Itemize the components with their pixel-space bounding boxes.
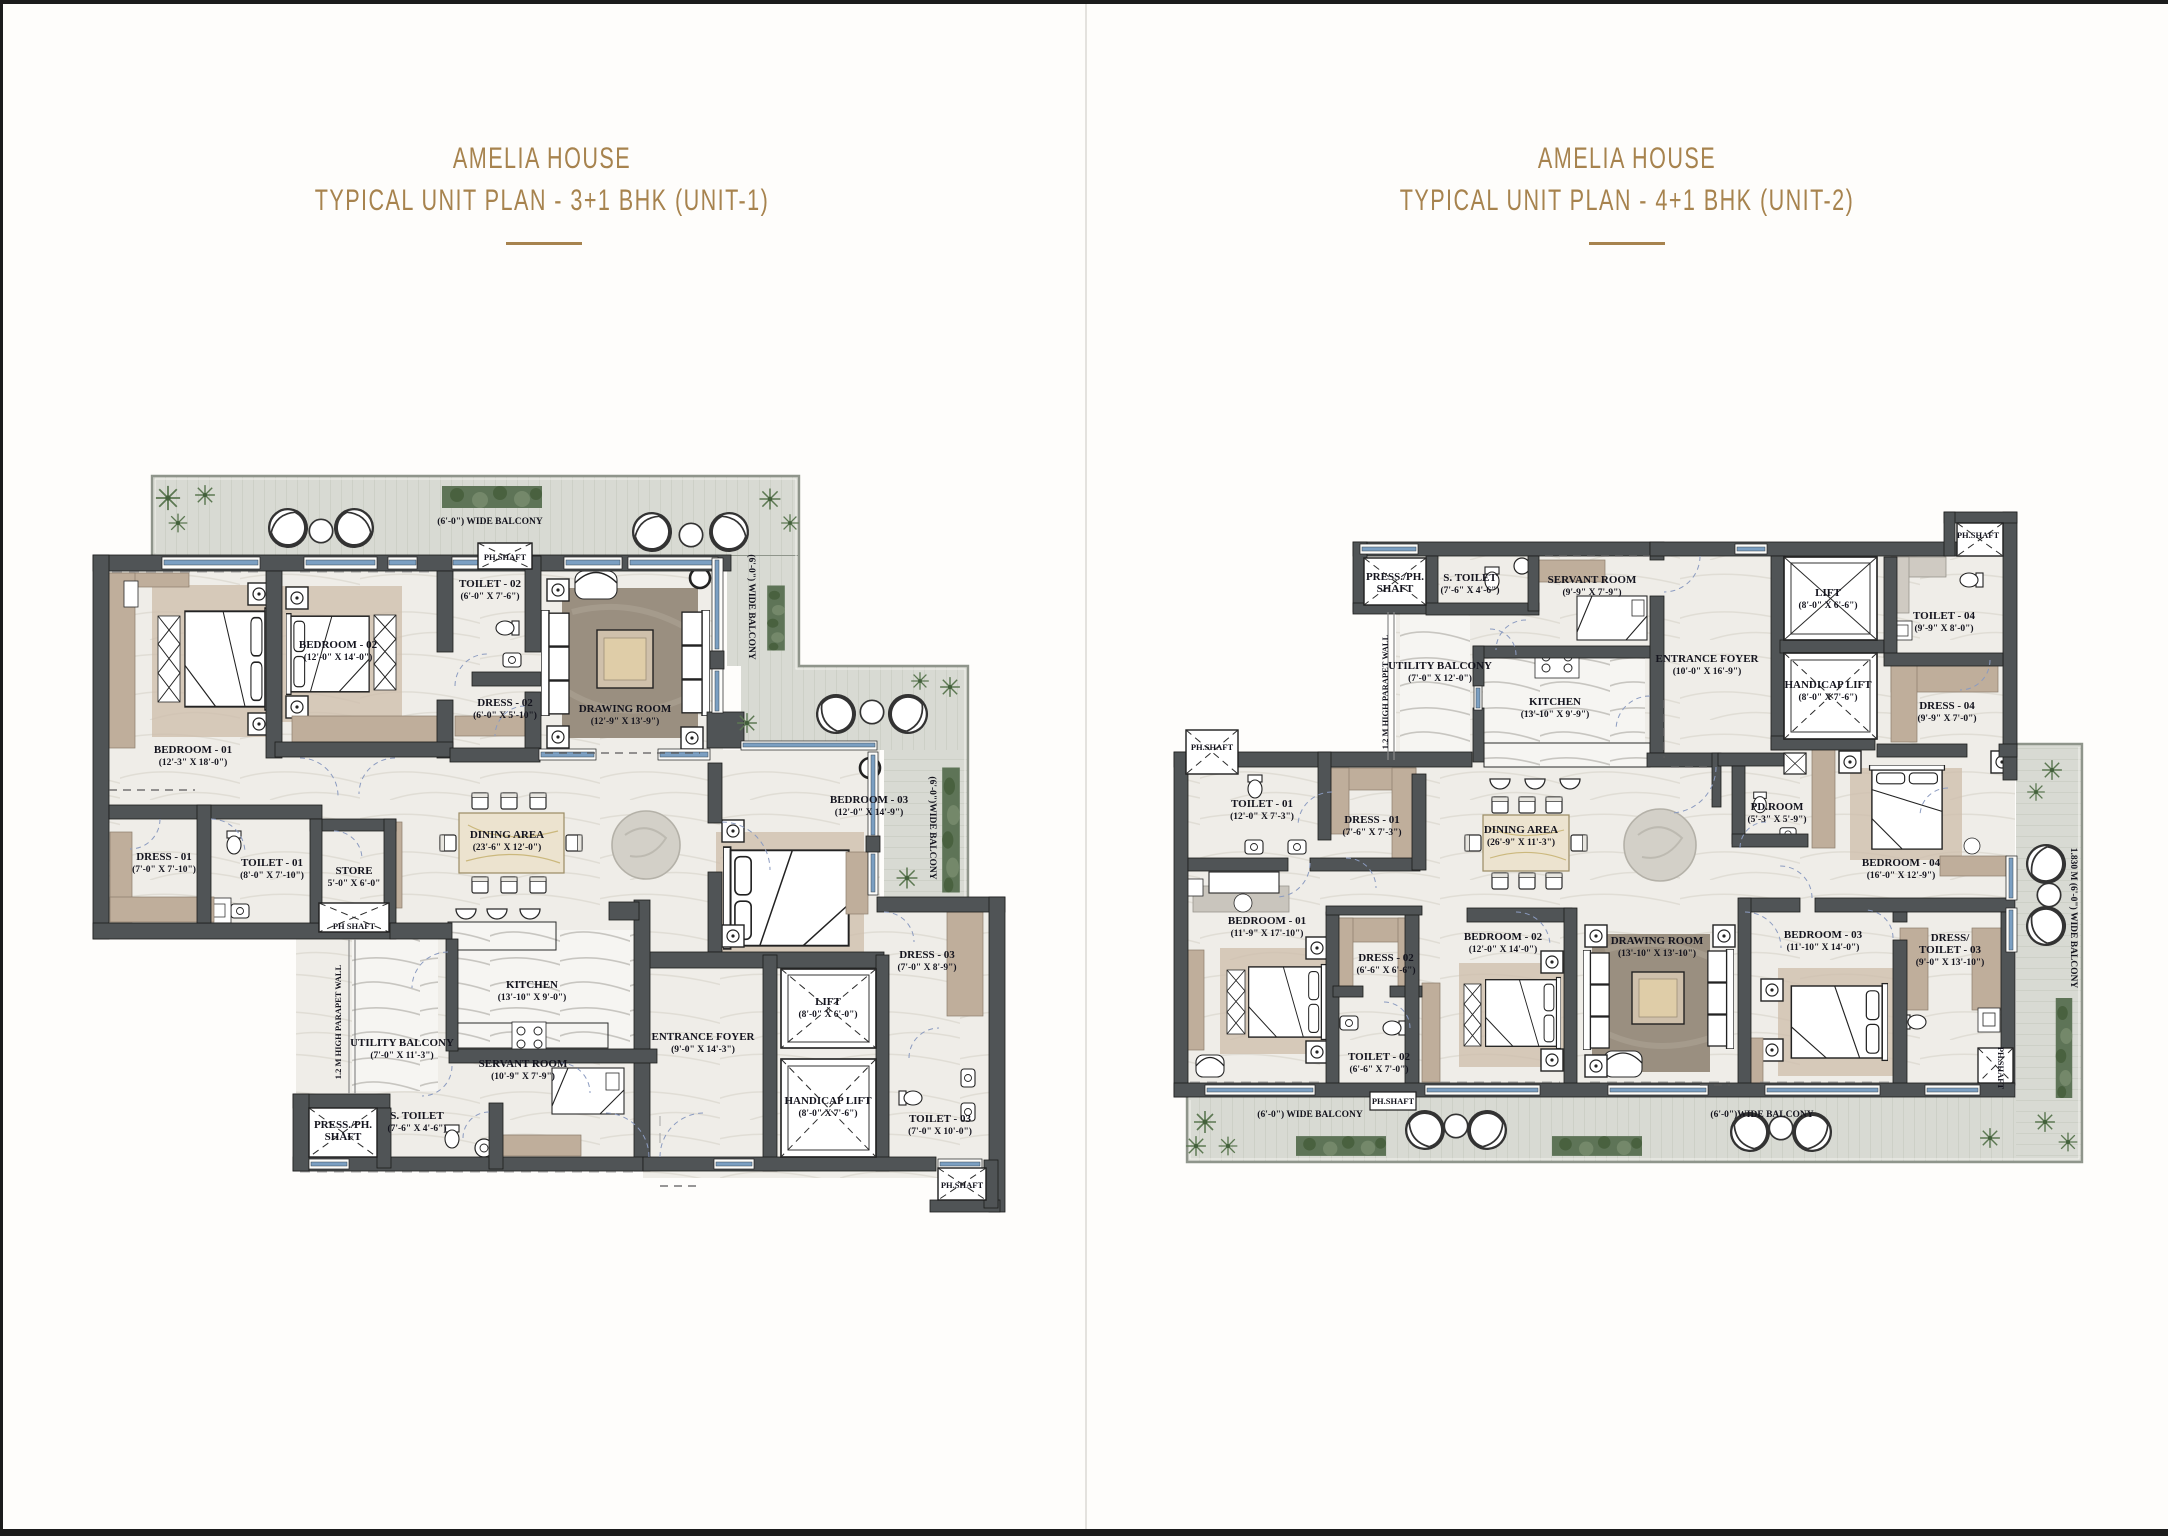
svg-text:BEDROOM - 01: BEDROOM - 01 [1228, 915, 1306, 927]
svg-text:(7'-0" X 11'-3"): (7'-0" X 11'-3") [370, 1050, 433, 1061]
svg-text:SHAFT: SHAFT [1377, 583, 1414, 595]
svg-text:DRESS - 01: DRESS - 01 [136, 851, 192, 863]
svg-text:(16'-0" X 12'-9"): (16'-0" X 12'-9") [1867, 870, 1936, 881]
svg-text:(7'-6" X 4'-6"): (7'-6" X 4'-6") [1440, 585, 1499, 596]
svg-text:SHAFT: SHAFT [325, 1131, 362, 1143]
svg-text:TOILET - 01: TOILET - 01 [1231, 798, 1293, 810]
svg-text:(13'-10" X 13'-10"): (13'-10" X 13'-10") [1618, 948, 1696, 959]
svg-text:DINING AREA: DINING AREA [1484, 824, 1558, 836]
svg-text:(12'-0" X 7'-3"): (12'-0" X 7'-3") [1230, 811, 1294, 822]
svg-text:DRESS - 02: DRESS - 02 [1358, 952, 1414, 964]
svg-text:LIFT: LIFT [1815, 587, 1841, 599]
svg-text:(11'-9" X 17'-10"): (11'-9" X 17'-10") [1231, 928, 1304, 939]
svg-text:(9'-9" X 8'-0"): (9'-9" X 8'-0") [1914, 623, 1973, 634]
svg-text:(12'-3" X 18'-0"): (12'-3" X 18'-0") [159, 757, 228, 768]
svg-text:HANDICAP LIFT: HANDICAP LIFT [1784, 679, 1872, 691]
svg-text:(6'-6" X 6'-6"): (6'-6" X 6'-6") [1356, 965, 1415, 976]
svg-text:PRESS./PH.: PRESS./PH. [1366, 571, 1424, 583]
svg-text:PH.SHAFT: PH.SHAFT [1957, 530, 2000, 540]
svg-text:ENTRANCE FOYER: ENTRANCE FOYER [652, 1031, 756, 1043]
svg-text:DRAWING ROOM: DRAWING ROOM [1611, 935, 1704, 947]
svg-text:KITCHEN: KITCHEN [506, 979, 558, 991]
svg-text:(9'-0" X 13'-10"): (9'-0" X 13'-10") [1916, 957, 1985, 968]
svg-text:ENTRANCE FOYER: ENTRANCE FOYER [1656, 653, 1760, 665]
svg-text:DRESS - 01: DRESS - 01 [1344, 814, 1400, 826]
svg-text:BEDROOM - 02: BEDROOM - 02 [299, 639, 378, 651]
svg-text:PH SHAFT: PH SHAFT [333, 921, 376, 931]
svg-text:(7'-6" X 4'-6"): (7'-6" X 4'-6") [387, 1123, 446, 1134]
svg-text:(7'-0" X 8'-9"): (7'-0" X 8'-9") [897, 962, 956, 973]
svg-text:(10'-9" X 7'-9"): (10'-9" X 7'-9") [491, 1071, 555, 1082]
svg-text:UTILITY BALCONY: UTILITY BALCONY [350, 1037, 454, 1049]
svg-text:5'-0" X 6'-0": 5'-0" X 6'-0" [328, 879, 381, 889]
svg-text:DRESS - 03: DRESS - 03 [899, 949, 955, 961]
svg-text:HANDICAP LIFT: HANDICAP LIFT [784, 1095, 872, 1107]
svg-text:(6'-0") WIDE BALCONY: (6'-0") WIDE BALCONY [437, 516, 543, 527]
svg-text:UTILITY BALCONY: UTILITY BALCONY [1388, 660, 1492, 672]
svg-text:DRESS/: DRESS/ [1931, 932, 1970, 944]
svg-text:(8'-0" X 7'-10"): (8'-0" X 7'-10") [240, 870, 304, 881]
svg-text:(11'-10" X 14'-0"): (11'-10" X 14'-0") [1787, 942, 1860, 953]
svg-text:(7'-0" X 10'-0"): (7'-0" X 10'-0") [908, 1126, 972, 1137]
svg-text:TOILET - 02: TOILET - 02 [459, 578, 521, 590]
svg-text:(6'-6" X 7'-0"): (6'-6" X 7'-0") [1349, 1064, 1408, 1075]
svg-text:(9'-9" X 7'-9"): (9'-9" X 7'-9") [1562, 587, 1621, 598]
svg-text:PH.SHAFT: PH.SHAFT [484, 552, 527, 562]
svg-text:PRESS./PH.: PRESS./PH. [314, 1119, 372, 1131]
svg-text:PH.SHAFT: PH.SHAFT [1996, 1047, 2006, 1090]
svg-text:TOILET - 02: TOILET - 02 [1348, 1051, 1410, 1063]
svg-text:BEDROOM - 03: BEDROOM - 03 [830, 794, 909, 806]
svg-text:LIFT: LIFT [815, 996, 841, 1008]
svg-text:(8'-0" X 7'-6"): (8'-0" X 7'-6") [798, 1108, 857, 1119]
svg-text:(6'-0") WIDE BALCONY: (6'-0") WIDE BALCONY [746, 554, 757, 660]
svg-text:BEDROOM - 02: BEDROOM - 02 [1464, 931, 1543, 943]
svg-text:DRAWING ROOM: DRAWING ROOM [579, 703, 672, 715]
svg-text:(12'-0" X 14'-0"): (12'-0" X 14'-0") [304, 652, 373, 663]
svg-text:(8'-0" X 6'-6"): (8'-0" X 6'-6") [1798, 600, 1857, 611]
svg-text:(26'-9" X 11'-3"): (26'-9" X 11'-3") [1487, 837, 1555, 848]
svg-text:(12'-0" X 14'-0"): (12'-0" X 14'-0") [1469, 944, 1538, 955]
svg-text:SERVANT ROOM: SERVANT ROOM [1548, 574, 1637, 586]
svg-text:(10'-0" X 16'-9"): (10'-0" X 16'-9") [1673, 666, 1742, 677]
svg-text:SERVANT ROOM: SERVANT ROOM [479, 1058, 568, 1070]
svg-text:(12'-9" X 13'-9"): (12'-9" X 13'-9") [591, 716, 660, 727]
svg-text:(13'-10" X 9'-0"): (13'-10" X 9'-0") [498, 992, 567, 1003]
svg-text:S. TOILET: S. TOILET [390, 1110, 444, 1122]
svg-text:STORE: STORE [335, 865, 372, 877]
svg-text:(6'-0")WIDE BALCONY: (6'-0")WIDE BALCONY [927, 776, 938, 879]
svg-text:PH.SHAFT: PH.SHAFT [1191, 742, 1234, 752]
svg-text:1.2 M HIGH PARAPET WALL: 1.2 M HIGH PARAPET WALL [1380, 634, 1390, 749]
svg-text:TOILET - 03: TOILET - 03 [909, 1113, 971, 1125]
svg-text:(7'-0" X 12'-0"): (7'-0" X 12'-0") [1408, 673, 1472, 684]
svg-text:BEDROOM - 04: BEDROOM - 04 [1862, 857, 1941, 869]
svg-text:BEDROOM - 01: BEDROOM - 01 [154, 744, 232, 756]
svg-text:1.830 M (6'-0") WIDE BALCONY: 1.830 M (6'-0") WIDE BALCONY [2068, 848, 2079, 989]
svg-text:PH.SHAFT: PH.SHAFT [1372, 1096, 1415, 1106]
svg-text:(8'-0" X 6'-0"): (8'-0" X 6'-0") [798, 1009, 857, 1020]
svg-text:(5'-3" X 5'-9"): (5'-3" X 5'-9") [1747, 814, 1806, 825]
svg-text:TOILET - 03: TOILET - 03 [1919, 944, 1981, 956]
svg-text:(7'-6" X 7'-3"): (7'-6" X 7'-3") [1342, 827, 1401, 838]
svg-text:(7'-0" X 7'-10"): (7'-0" X 7'-10") [132, 864, 196, 875]
svg-text:S. TOILET: S. TOILET [1443, 572, 1497, 584]
svg-text:DRESS - 04: DRESS - 04 [1919, 700, 1975, 712]
svg-text:1.2 M HIGH PARAPET WALL: 1.2 M HIGH PARAPET WALL [333, 964, 343, 1079]
svg-text:KITCHEN: KITCHEN [1529, 696, 1581, 708]
svg-text:(6'-0")WIDE BALCONY: (6'-0")WIDE BALCONY [1710, 1109, 1813, 1120]
svg-text:(6'-0") WIDE BALCONY: (6'-0") WIDE BALCONY [1257, 1109, 1363, 1120]
svg-text:DRESS - 02: DRESS - 02 [477, 697, 533, 709]
svg-text:TOILET - 04: TOILET - 04 [1913, 610, 1975, 622]
svg-text:(9'-9" X 7'-0"): (9'-9" X 7'-0") [1917, 713, 1976, 724]
svg-text:(6'-0" X 5'-10"): (6'-0" X 5'-10") [473, 710, 537, 721]
svg-text:(9'-0" X 14'-3"): (9'-0" X 14'-3") [671, 1044, 735, 1055]
svg-text:DINING AREA: DINING AREA [470, 829, 544, 841]
svg-text:BEDROOM - 03: BEDROOM - 03 [1784, 929, 1863, 941]
svg-text:PH.SHAFT: PH.SHAFT [941, 1180, 984, 1190]
svg-text:(23'-6" X 12'-0"): (23'-6" X 12'-0") [473, 842, 542, 853]
svg-text:TOILET - 01: TOILET - 01 [241, 857, 303, 869]
svg-text:PD.ROOM: PD.ROOM [1751, 801, 1804, 813]
svg-text:(6'-0" X 7'-6"): (6'-0" X 7'-6") [460, 591, 519, 602]
svg-text:(8'-0" X 7'-6"): (8'-0" X 7'-6") [1798, 692, 1857, 703]
svg-text:(12'-0" X 14'-9"): (12'-0" X 14'-9") [835, 807, 904, 818]
svg-text:(13'-10" X 9'-9"): (13'-10" X 9'-9") [1521, 709, 1590, 720]
